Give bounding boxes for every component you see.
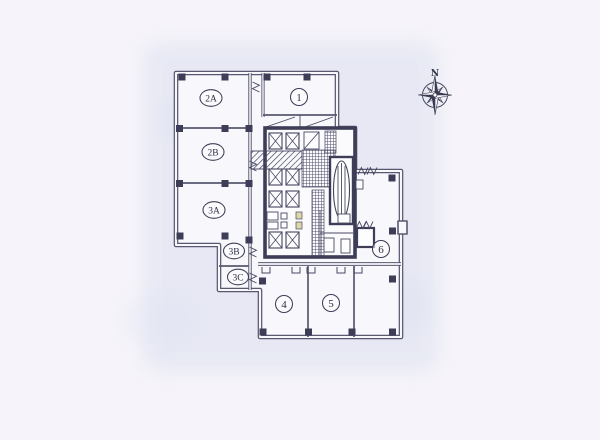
room-label-3a: 3A [203,202,225,219]
room-label-6: 6 [373,241,390,258]
label-text: 3B [228,247,239,257]
service-core [251,128,355,257]
room-label-3c: 3C [228,269,249,285]
room-label-2a: 2A [200,90,222,107]
scan-blotch [120,294,200,346]
room-label-4: 4 [276,296,293,313]
label-text: 4 [281,299,287,311]
label-text: 5 [328,298,334,310]
compass-hub [433,93,437,97]
fixture-accent [296,212,302,219]
floor-plan-figure: 2A 2B 3A 3B 3C 1 4 5 [0,0,600,440]
duct-strip [312,190,324,256]
label-text: 1 [296,92,302,104]
east-bay-protrusion [398,221,407,234]
label-text: 3A [208,206,220,216]
label-text: 3C [232,273,243,283]
room-label-3b: 3B [224,243,245,259]
room-label-5: 5 [323,295,340,312]
room-label-1: 1 [291,89,308,106]
core-east-door [356,180,363,189]
duct-top [325,131,336,153]
label-text: 6 [378,244,384,256]
stair-hatch [251,151,302,169]
label-text: 2A [205,94,217,104]
east-shaft-box [357,228,374,247]
label-text: 2B [207,148,218,158]
fixture-accent [296,222,302,229]
room-label-2b: 2B [202,144,224,161]
